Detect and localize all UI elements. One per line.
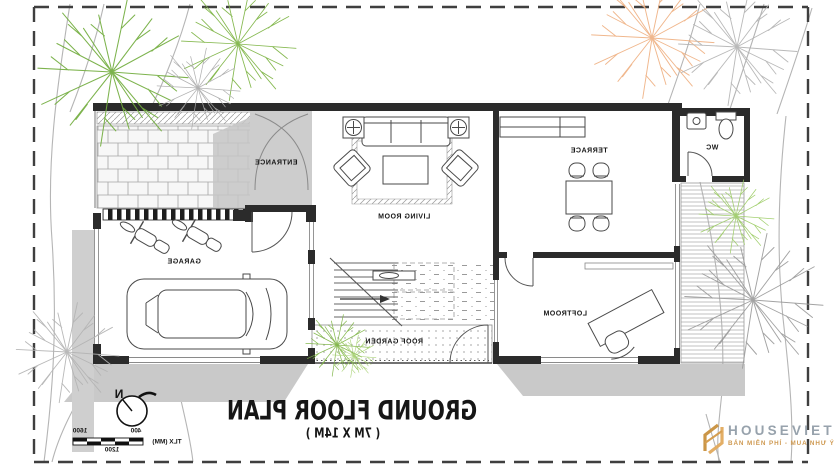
wc-label: WC (706, 145, 719, 152)
dining-table (566, 181, 612, 214)
scale-tick-1600: 1600 (73, 428, 87, 435)
sofa (362, 117, 450, 146)
living-room-label: LIVING ROOM (378, 214, 431, 221)
floor-plan-page: ENTRANCE LIVING ROOM TERRACE WC GARAGE L… (0, 0, 840, 472)
roof-garden-label: ROOF GARDEN (365, 339, 423, 346)
plant-pot-right (448, 117, 469, 138)
courtyard-paving (97, 112, 255, 208)
north-label: N (115, 387, 124, 401)
loftroom-label: LOFTROOM (543, 311, 587, 318)
scale-tick-1200: 1200 (105, 447, 119, 454)
scale-unit-label: TLX (MM) (152, 439, 181, 446)
tree-orange (592, 0, 714, 98)
stairs (330, 258, 402, 326)
terrace-label: TERRACE (570, 148, 607, 155)
plant-pot-left (343, 117, 364, 138)
scale-bar (73, 438, 143, 445)
garage-door-stripes (103, 209, 247, 220)
coffee-table (383, 156, 428, 184)
car (127, 274, 287, 354)
watermark-tagline: BẢN MIỄN PHÍ - MUA NHƯ Ý (728, 440, 835, 447)
houseviet-watermark: HOUSEVIET BẢN MIỄN PHÍ - MUA NHƯ Ý (728, 423, 835, 447)
armchair-left (332, 148, 372, 188)
plan-subtitle: ( 7M X 14M ) (306, 427, 380, 442)
armchair-right (440, 148, 480, 188)
wc-sink (687, 113, 706, 129)
garage-label: GARAGE (167, 259, 201, 266)
wc-toilet (716, 112, 736, 139)
kitchen-counter (500, 117, 585, 137)
plan-title: GROUND FLOOR PLAN (227, 396, 477, 427)
watermark-brand: HOUSEVIET (728, 423, 835, 438)
console-table (373, 271, 415, 280)
loftroom-shelf (585, 263, 673, 269)
scale-tick-400: 400 (131, 428, 142, 435)
entrance-label: ENTRANCE (255, 160, 298, 167)
